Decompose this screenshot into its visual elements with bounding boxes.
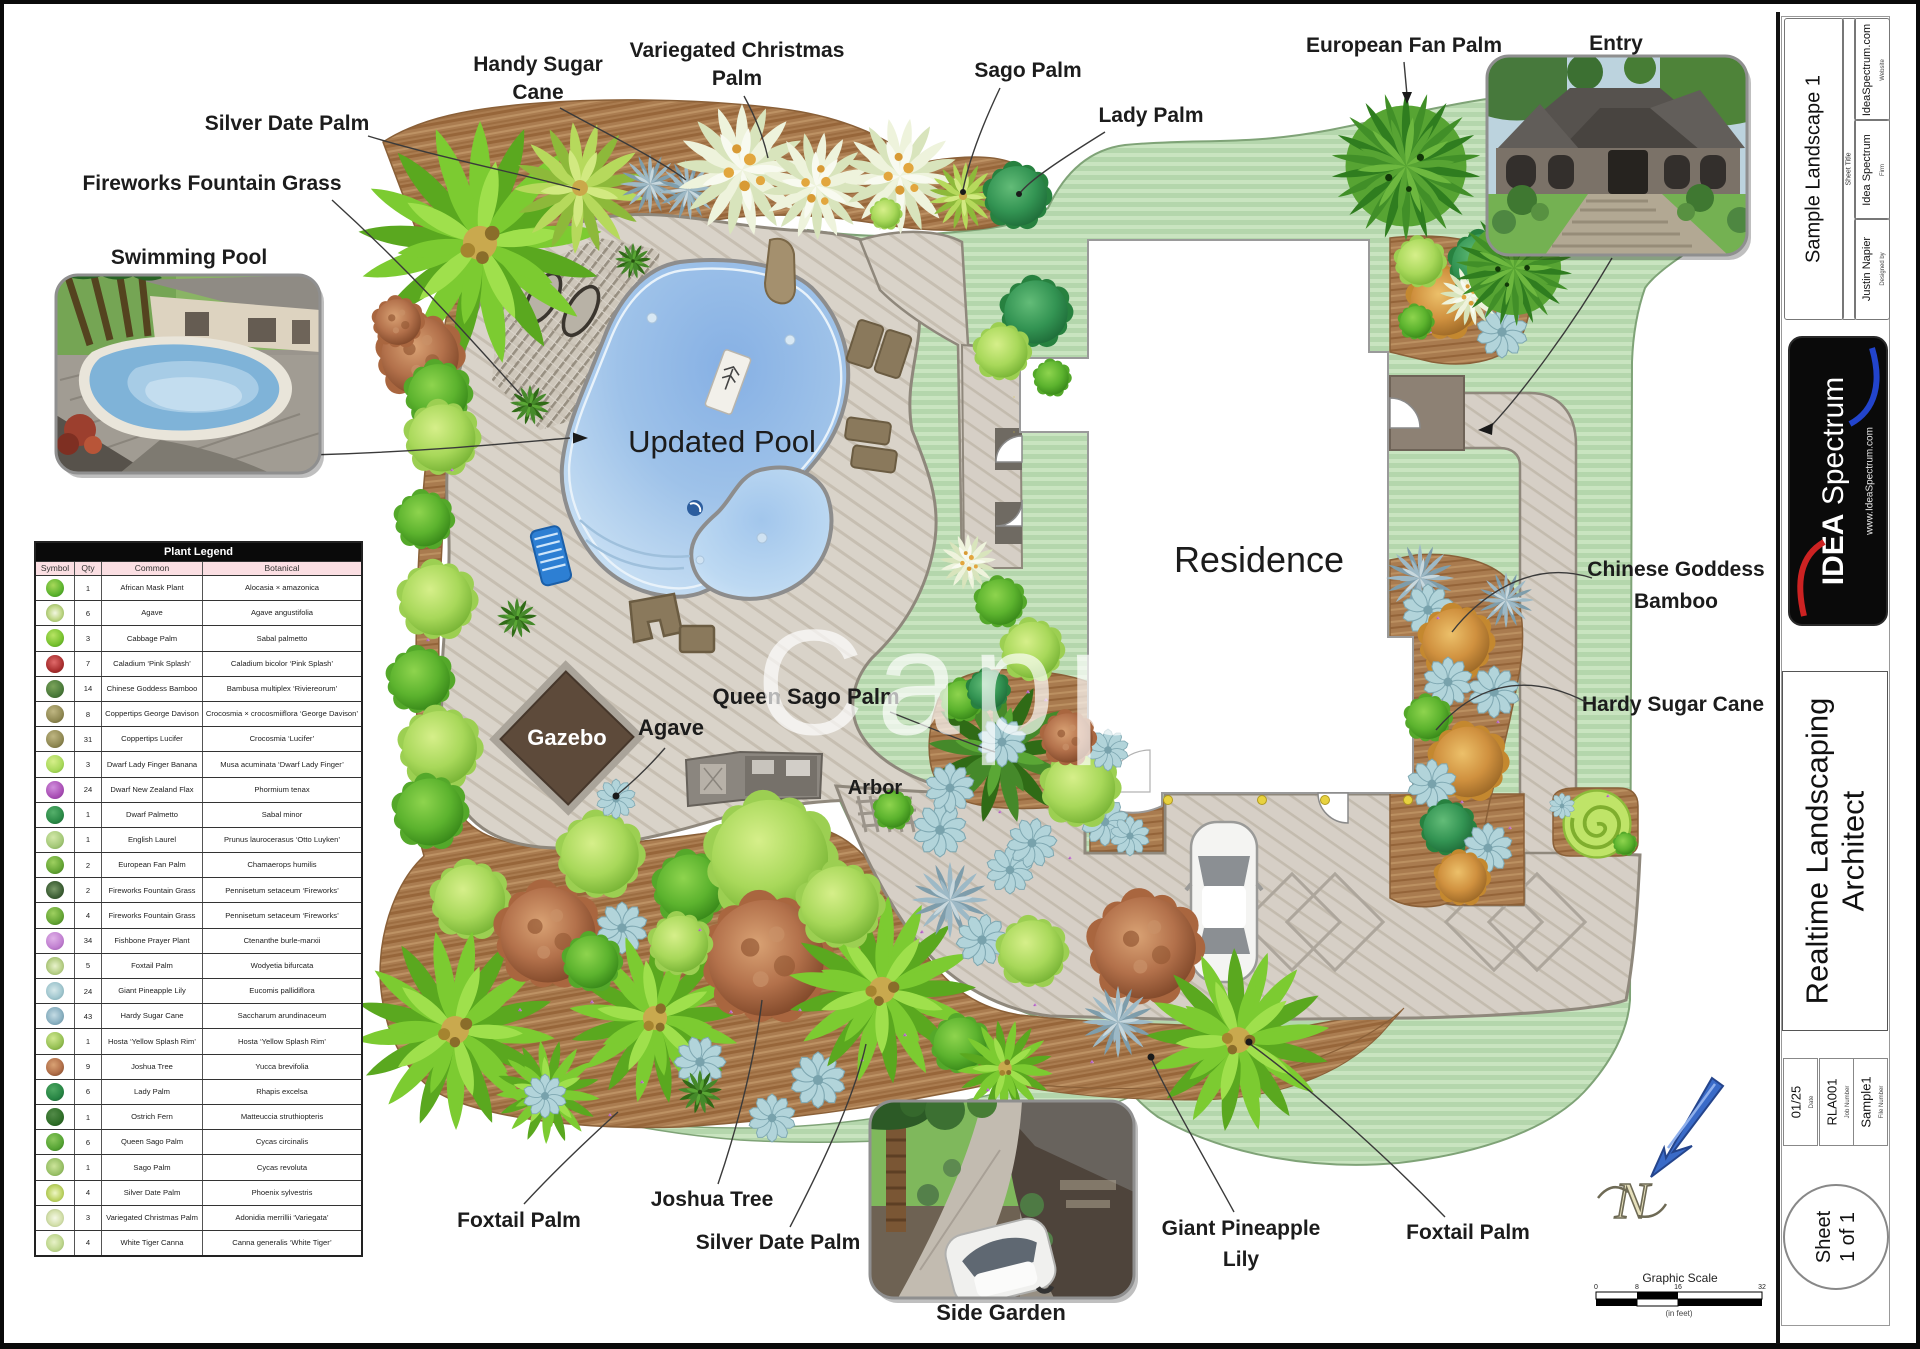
svg-text:(in feet): (in feet) <box>1665 1309 1692 1318</box>
svg-text:Entry: Entry <box>1589 32 1643 55</box>
svg-text:Agave: Agave <box>638 715 704 740</box>
svg-text:Sago Palm: Sago Palm <box>974 59 1081 82</box>
svg-text:Fireworks Fountain Grass: Fireworks Fountain Grass <box>82 172 341 195</box>
svg-text:Variegated Christmas: Variegated Christmas <box>630 39 845 62</box>
svg-text:Joshua Tree: Joshua Tree <box>651 1188 774 1211</box>
svg-text:Giant Pineapple: Giant Pineapple <box>1162 1217 1321 1240</box>
svg-text:Silver Date Palm: Silver Date Palm <box>696 1231 861 1254</box>
svg-text:16: 16 <box>1674 1284 1682 1291</box>
svg-text:Arbor: Arbor <box>848 777 903 799</box>
svg-text:Palm: Palm <box>712 67 762 90</box>
svg-text:Hardy Sugar Cane: Hardy Sugar Cane <box>1582 693 1764 716</box>
svg-text:8: 8 <box>1635 1284 1639 1291</box>
svg-text:Cane: Cane <box>512 81 563 104</box>
svg-text:Foxtail Palm: Foxtail Palm <box>1406 1221 1530 1244</box>
svg-text:32: 32 <box>1758 1284 1766 1291</box>
svg-text:Bamboo: Bamboo <box>1634 590 1718 613</box>
svg-text:Residence: Residence <box>1174 539 1344 580</box>
svg-text:0: 0 <box>1594 1284 1598 1291</box>
svg-text:Handy Sugar: Handy Sugar <box>473 53 603 76</box>
svg-text:Lily: Lily <box>1223 1248 1259 1271</box>
svg-text:Graphic Scale: Graphic Scale <box>1642 1271 1718 1285</box>
svg-text:Gazebo: Gazebo <box>527 725 606 750</box>
svg-text:Chinese Goddess: Chinese Goddess <box>1587 558 1764 581</box>
svg-text:Silver Date Palm: Silver Date Palm <box>205 112 370 135</box>
svg-text:Foxtail Palm: Foxtail Palm <box>457 1209 581 1232</box>
svg-text:Lady Palm: Lady Palm <box>1098 104 1203 127</box>
svg-text:Swimming Pool: Swimming Pool <box>111 246 267 269</box>
svg-text:European Fan Palm: European Fan Palm <box>1306 34 1502 57</box>
svg-text:Updated Pool: Updated Pool <box>628 424 816 459</box>
svg-text:N: N <box>1614 1173 1653 1230</box>
svg-text:Side Garden: Side Garden <box>936 1300 1066 1325</box>
